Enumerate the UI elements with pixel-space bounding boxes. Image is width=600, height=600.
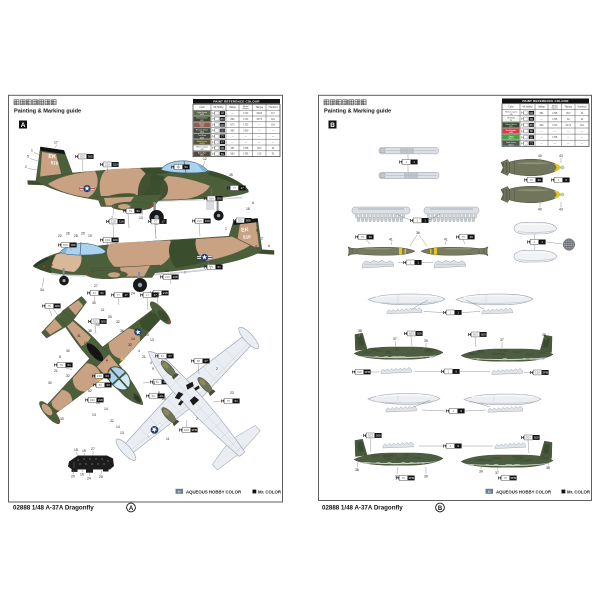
svg-text:XF2: XF2 (566, 113, 571, 115)
svg-text:3PB: 3PB (191, 428, 197, 432)
svg-text:75: 75 (504, 476, 508, 480)
svg-text:8: 8 (256, 229, 258, 233)
svg-text:30: 30 (470, 235, 474, 239)
svg-text:30: 30 (538, 178, 542, 182)
svg-text:H: H (178, 490, 181, 494)
svg-text:Painting & Marking guide: Painting & Marking guide (324, 109, 391, 115)
svg-text:14: 14 (131, 337, 135, 341)
svg-text:27: 27 (94, 284, 98, 288)
svg-text:3PB: 3PB (542, 371, 548, 375)
svg-text:1: 1 (225, 227, 227, 231)
svg-text:2: 2 (25, 165, 27, 169)
svg-text:B: B (438, 506, 443, 512)
svg-text:1713: 1713 (552, 125, 558, 127)
svg-text:305: 305 (80, 155, 85, 159)
svg-text:4: 4 (255, 245, 257, 249)
svg-text:21: 21 (142, 355, 146, 359)
svg-text:XF26: XF26 (257, 113, 263, 115)
svg-text:319: 319 (197, 219, 202, 223)
svg-text:AQUEOUS HOBBY COLOR: AQUEOUS HOBBY COLOR (496, 489, 552, 494)
svg-text:306: 306 (238, 219, 243, 223)
svg-text:17: 17 (125, 293, 129, 297)
svg-text:Tamiya: Tamiya (256, 107, 264, 109)
svg-text:10: 10 (84, 341, 88, 345)
svg-text:303: 303 (220, 117, 225, 121)
svg-text:303: 303 (529, 123, 534, 127)
svg-text:318: 318 (357, 370, 362, 374)
svg-text:34: 34 (40, 288, 44, 292)
svg-text:Humbrol: Humbrol (269, 106, 278, 109)
svg-text:318: 318 (97, 374, 102, 378)
svg-text:77: 77 (117, 293, 121, 297)
svg-text:B: B (330, 122, 335, 129)
svg-text:3PB: 3PB (510, 476, 516, 480)
svg-text:10: 10 (96, 401, 100, 405)
svg-text:Vallejo: Vallejo (229, 107, 236, 109)
svg-text:303: 303 (409, 332, 414, 336)
svg-text:61: 61 (218, 265, 222, 269)
svg-text:Mr.Hobby: Mr.Hobby (523, 106, 534, 109)
svg-text:38: 38 (358, 329, 362, 333)
svg-text:75: 75 (129, 209, 133, 213)
svg-text:313: 313 (165, 275, 170, 279)
svg-text:11: 11 (152, 381, 156, 385)
svg-text:61: 61 (101, 291, 105, 295)
svg-text:8: 8 (59, 355, 61, 359)
svg-text:38: 38 (546, 466, 550, 470)
svg-text:PAINT REFERENCE COLOUR: PAINT REFERENCE COLOUR (522, 99, 569, 103)
svg-text:303: 303 (473, 333, 478, 337)
svg-text:320: 320 (184, 428, 189, 432)
svg-text:Humbrol: Humbrol (578, 106, 587, 109)
svg-text:02888 1/48 A-37A Dragonfly: 02888 1/48 A-37A Dragonfly (13, 505, 94, 512)
svg-text:51: 51 (161, 354, 165, 358)
svg-text:1768: 1768 (552, 113, 558, 115)
svg-text:13: 13 (165, 269, 169, 273)
svg-text:30: 30 (108, 315, 112, 319)
svg-text:43: 43 (559, 208, 563, 212)
svg-text:28: 28 (74, 234, 78, 238)
svg-text:18: 18 (246, 207, 250, 211)
svg-text:2: 2 (196, 417, 198, 421)
svg-text:32: 32 (116, 320, 120, 324)
svg-text:H: H (488, 490, 491, 494)
svg-text:Mr. COLOR: Mr. COLOR (567, 489, 591, 494)
svg-text:318: 318 (535, 371, 540, 375)
svg-text:309: 309 (481, 333, 486, 337)
svg-text:XF2: XF2 (257, 148, 262, 150)
svg-text:18: 18 (74, 448, 78, 452)
svg-text:1745: 1745 (552, 119, 558, 121)
svg-text:24: 24 (87, 477, 91, 481)
svg-text:29: 29 (81, 232, 85, 236)
svg-text:38: 38 (197, 359, 201, 363)
svg-text:19: 19 (82, 449, 86, 453)
svg-text:11: 11 (101, 308, 105, 312)
svg-text:75: 75 (402, 476, 406, 480)
svg-text:61: 61 (137, 209, 141, 213)
svg-text:319: 319 (205, 219, 210, 223)
svg-text:36231: 36231 (508, 144, 513, 146)
svg-text:622: 622 (509, 126, 512, 128)
svg-text:Color: Color (199, 106, 205, 109)
svg-text:Tamiya: Tamiya (565, 107, 573, 109)
svg-text:61: 61 (68, 363, 72, 367)
svg-text:61: 61 (235, 399, 239, 403)
svg-text:14: 14 (116, 425, 120, 429)
svg-text:32: 32 (110, 419, 114, 423)
svg-text:02888 1/48 A-37A Dragonfly: 02888 1/48 A-37A Dragonfly (322, 505, 403, 512)
svg-text:309: 309 (417, 332, 422, 336)
svg-text:26: 26 (66, 232, 70, 236)
svg-text:1708: 1708 (552, 137, 558, 139)
svg-text:303: 303 (526, 436, 531, 440)
svg-text:38: 38 (542, 333, 546, 337)
svg-text:1420: 1420 (243, 131, 249, 133)
svg-text:311: 311 (220, 146, 225, 150)
svg-text:23: 23 (230, 391, 234, 395)
svg-text:52: 52 (152, 394, 156, 398)
svg-text:17: 17 (54, 141, 58, 145)
svg-text:6: 6 (252, 201, 254, 205)
svg-text:41: 41 (389, 238, 393, 242)
svg-text:1702: 1702 (243, 125, 249, 127)
svg-text:75: 75 (227, 399, 231, 403)
svg-text:XF73: XF73 (257, 119, 263, 121)
svg-text:510: 510 (243, 234, 251, 240)
svg-text:19: 19 (88, 234, 92, 238)
svg-text:40: 40 (538, 208, 542, 212)
svg-text:27: 27 (205, 359, 209, 363)
svg-text:318: 318 (509, 114, 512, 116)
svg-text:36227: 36227 (508, 138, 513, 140)
svg-text:Mr.Hobby: Mr.Hobby (214, 106, 225, 109)
svg-text:40: 40 (538, 154, 542, 158)
svg-text:3PB: 3PB (408, 476, 414, 480)
svg-text:306: 306 (246, 219, 251, 223)
svg-text:306: 306 (63, 243, 68, 247)
svg-text:218: 218 (163, 291, 168, 295)
svg-text:309: 309 (101, 320, 106, 324)
svg-text:36: 36 (416, 231, 420, 235)
svg-text:EK: EK (48, 154, 56, 161)
svg-text:13: 13 (150, 338, 154, 342)
svg-text:318: 318 (119, 220, 124, 224)
svg-text:13: 13 (92, 413, 96, 417)
svg-text:9: 9 (152, 367, 154, 371)
svg-text:75: 75 (530, 178, 534, 182)
svg-text:07: 07 (169, 354, 173, 358)
svg-text:309: 309 (55, 304, 60, 308)
svg-text:75: 75 (48, 304, 52, 308)
svg-text:30: 30 (48, 381, 52, 385)
svg-text:39: 39 (424, 475, 428, 479)
svg-text:309: 309 (376, 434, 381, 438)
svg-text:14: 14 (104, 407, 108, 411)
svg-text:31: 31 (77, 334, 81, 338)
svg-text:52: 52 (88, 389, 92, 393)
svg-text:A: A (129, 506, 134, 512)
svg-text:10: 10 (96, 323, 100, 327)
svg-text:3PB: 3PB (364, 370, 370, 374)
svg-text:37: 37 (393, 337, 397, 341)
svg-text:1713: 1713 (243, 119, 249, 121)
svg-text:306: 306 (209, 197, 214, 201)
svg-text:EK: EK (241, 227, 249, 234)
svg-text:13: 13 (120, 431, 124, 435)
svg-text:306: 306 (71, 243, 76, 247)
svg-text:38: 38 (355, 468, 359, 472)
svg-text:37: 37 (500, 338, 504, 342)
svg-text:510: 510 (51, 160, 59, 166)
svg-text:17: 17 (154, 293, 158, 297)
svg-text:303: 303 (368, 434, 373, 438)
svg-text:12: 12 (203, 157, 207, 161)
svg-text:77: 77 (154, 220, 158, 224)
svg-text:Painting & Marking guide: Painting & Marking guide (14, 109, 81, 115)
svg-text:XF73: XF73 (566, 125, 572, 127)
svg-text:61: 61 (93, 291, 97, 295)
svg-text:35: 35 (88, 329, 92, 333)
svg-text:320: 320 (220, 129, 225, 133)
svg-text:Mr. COLOR: Mr. COLOR (258, 489, 282, 494)
svg-text:320: 320 (113, 238, 118, 242)
svg-text:13: 13 (139, 216, 143, 220)
svg-text:311: 311 (529, 111, 534, 115)
svg-text:17: 17 (241, 186, 245, 190)
svg-text:14: 14 (145, 333, 149, 337)
svg-text:Vallejo: Vallejo (538, 107, 545, 109)
svg-text:75: 75 (60, 363, 64, 367)
svg-text:318: 318 (111, 220, 116, 224)
svg-text:32: 32 (128, 343, 132, 347)
svg-text:51: 51 (185, 165, 189, 169)
svg-text:43: 43 (559, 154, 563, 158)
svg-text:36: 36 (120, 329, 124, 333)
svg-text:1795: 1795 (243, 154, 249, 156)
svg-text:Master: Master (552, 107, 559, 110)
svg-text:320: 320 (105, 238, 110, 242)
svg-text:75: 75 (462, 235, 466, 239)
svg-text:35: 35 (229, 173, 233, 177)
svg-text:7: 7 (184, 271, 186, 275)
svg-text:X10: X10 (257, 154, 262, 156)
svg-text:77: 77 (233, 186, 237, 190)
svg-text:4: 4 (150, 361, 152, 365)
svg-text:1713: 1713 (243, 113, 249, 115)
svg-text:39: 39 (479, 470, 483, 474)
svg-text:A: A (21, 122, 26, 129)
svg-text:2: 2 (261, 237, 263, 241)
svg-text:30: 30 (60, 417, 64, 421)
svg-text:75: 75 (361, 235, 365, 239)
svg-text:37: 37 (495, 471, 499, 475)
svg-text:309: 309 (534, 436, 539, 440)
svg-text:52: 52 (99, 383, 103, 387)
svg-text:1768: 1768 (243, 148, 249, 150)
svg-text:24: 24 (131, 292, 135, 296)
svg-text:32: 32 (66, 374, 70, 378)
svg-text:PAINT REFERENCE COLOUR: PAINT REFERENCE COLOUR (213, 100, 260, 104)
svg-text:20: 20 (71, 475, 75, 479)
svg-text:27: 27 (91, 447, 95, 451)
svg-text:03: 03 (107, 383, 111, 387)
svg-text:17: 17 (146, 293, 150, 297)
svg-text:Color: Color (508, 106, 514, 109)
svg-text:Master: Master (243, 107, 250, 110)
svg-text:22: 22 (58, 234, 62, 238)
svg-text:318: 318 (173, 275, 178, 279)
svg-text:25: 25 (99, 475, 103, 479)
svg-text:305: 305 (88, 155, 93, 159)
svg-text:11: 11 (166, 437, 170, 441)
svg-text:30: 30 (66, 349, 70, 353)
svg-text:17: 17 (162, 220, 166, 224)
svg-text:320: 320 (105, 163, 110, 167)
svg-text:30: 30 (92, 301, 96, 305)
svg-text:2: 2 (216, 367, 218, 371)
svg-text:6: 6 (268, 244, 270, 248)
svg-text:AQUEOUS HOBBY COLOR: AQUEOUS HOBBY COLOR (186, 489, 242, 494)
svg-text:52: 52 (156, 380, 160, 384)
svg-text:03: 03 (106, 374, 110, 378)
svg-text:19: 19 (80, 473, 84, 477)
svg-text:320: 320 (90, 398, 95, 402)
svg-text:310: 310 (220, 123, 225, 127)
svg-text:1: 1 (31, 149, 33, 153)
svg-text:5: 5 (27, 155, 29, 159)
svg-text:306: 306 (217, 197, 222, 201)
svg-text:21: 21 (54, 369, 58, 373)
svg-text:3585: 3585 (509, 132, 513, 134)
svg-text:41: 41 (444, 238, 448, 242)
svg-text:4: 4 (138, 349, 140, 353)
svg-text:39: 39 (424, 339, 428, 343)
svg-text:24: 24 (510, 120, 512, 122)
svg-text:320: 320 (113, 163, 118, 167)
svg-text:30: 30 (369, 235, 373, 239)
